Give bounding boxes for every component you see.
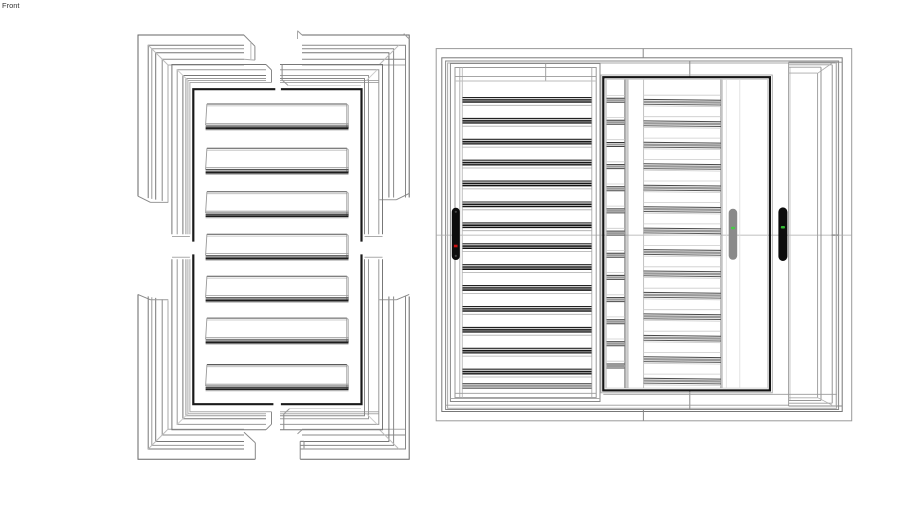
svg-text:Front: Front	[2, 1, 20, 10]
